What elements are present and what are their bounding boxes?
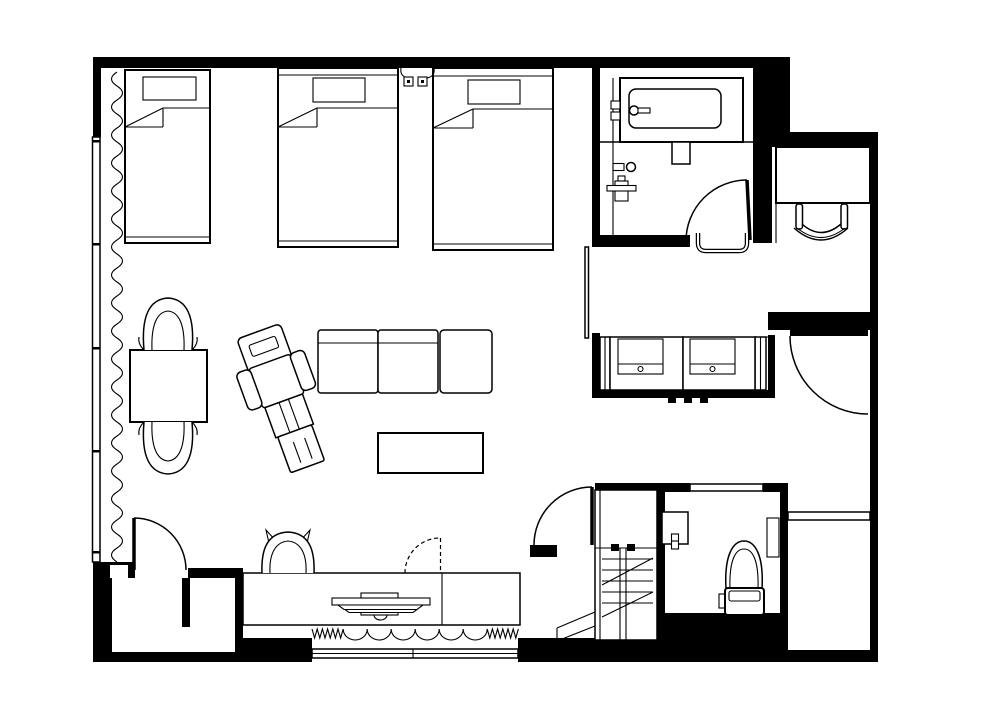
wall-niche-pier [182, 578, 190, 627]
glass-partition [690, 484, 763, 491]
window-mullion [93, 450, 101, 453]
corridor-edge [585, 247, 589, 338]
sofa-seat [318, 330, 378, 393]
wall-left-upper [93, 57, 101, 137]
door-leaf [790, 330, 868, 336]
bathroom-door [686, 180, 750, 241]
coffee-table [378, 433, 483, 473]
chair-back [143, 422, 192, 474]
reading-lights [401, 68, 434, 86]
floorplan [0, 0, 1000, 718]
wall-wardrobe-bottom [592, 390, 775, 398]
tv-speaker-bar [338, 605, 423, 610]
lamp-dot [421, 80, 424, 83]
dining-chair-bottom [139, 422, 198, 474]
curtain [112, 72, 123, 562]
pillow [468, 80, 520, 104]
pillow [313, 78, 365, 102]
sofa-ottoman [440, 330, 492, 393]
bathroom [600, 78, 753, 251]
chair-seat-arc [802, 224, 841, 233]
wall-bottom-seg2 [518, 638, 595, 662]
sofa [318, 330, 492, 393]
lamp-dot [407, 80, 410, 83]
towel-bar [698, 233, 747, 251]
faucet-knob [630, 106, 639, 115]
wall-wc-bottom-block [657, 613, 788, 662]
tap-knob [627, 163, 636, 172]
wall-corner-block [772, 57, 790, 147]
folding-door [405, 538, 441, 573]
drawer-unit [683, 337, 755, 390]
towel-bar-outer [698, 233, 747, 251]
wall-bottom-seg1 [243, 638, 312, 662]
desk-chair [794, 204, 848, 240]
deck-pillar [672, 142, 690, 164]
faucet-handle [611, 101, 620, 109]
washbasin [662, 512, 688, 549]
entry-door [790, 330, 868, 414]
floorplan-svg [0, 0, 1000, 718]
tv-screen-bar [332, 598, 430, 605]
desk [776, 147, 870, 203]
chair-arm [796, 204, 803, 229]
wall-tick [700, 398, 708, 403]
door-swing-arc-dashed [405, 538, 440, 573]
tv-base-bar [345, 610, 417, 613]
niche-notch [110, 565, 128, 578]
sofa-seat [378, 330, 438, 393]
door-swing-arc [790, 336, 868, 414]
wall-bathroom-left [592, 57, 600, 247]
stool [262, 530, 314, 573]
wall-bathroom-bottom [592, 235, 690, 247]
window-mullion [93, 140, 101, 143]
bed-1 [125, 70, 210, 243]
wall-niche-top-right [188, 568, 243, 578]
dining-set [130, 298, 207, 474]
window-mullion [93, 347, 101, 350]
mixer-bar [607, 186, 636, 192]
chair-arm [841, 204, 848, 229]
mixer-top [618, 176, 625, 181]
wall-taps [607, 163, 636, 202]
dining-chair-top [139, 298, 198, 350]
wall-tick [668, 398, 676, 403]
wall-wc-divider [657, 490, 665, 613]
door-swing-arc [686, 180, 747, 241]
wardrobe [600, 337, 768, 390]
faucet-spout [638, 108, 650, 113]
fold-out-flap [557, 612, 595, 641]
wall-right [870, 132, 878, 662]
wall-bottom-niche [93, 652, 243, 662]
drawer-unit [610, 337, 683, 390]
door-swing-arc [134, 518, 186, 570]
pillow [143, 77, 196, 100]
hinge-block [627, 544, 635, 551]
window-mullion [93, 243, 101, 246]
door-leaf [747, 180, 750, 240]
window-bottom [312, 649, 518, 658]
chair-seat-arc [794, 228, 848, 240]
wall-wardrobe-left [592, 333, 600, 398]
wall-bottom-right [788, 650, 878, 662]
door-swing-arc [534, 487, 592, 545]
wall-nook-top [790, 132, 878, 147]
chair-back [143, 298, 192, 350]
faucet-handle [611, 112, 620, 120]
wall-stub [530, 545, 557, 557]
bed-2 [278, 68, 398, 247]
wall-tick [684, 398, 692, 403]
tap-body [613, 164, 624, 171]
wall-shelf [767, 518, 779, 557]
wall-bottom-seg3 [595, 640, 657, 662]
towel-bar-inner [698, 233, 747, 251]
wall-top [93, 57, 790, 68]
dining-table [130, 350, 207, 422]
wc-door [534, 487, 592, 545]
wall-entry-top [768, 312, 878, 330]
hinge-block [611, 544, 619, 551]
wall-wardrobe-right [768, 335, 775, 395]
closet-shelf [788, 512, 870, 520]
bed-3 [433, 68, 553, 250]
wall-bathroom-right [753, 57, 772, 243]
window-mullion [93, 551, 101, 554]
toilet [719, 541, 764, 615]
valance [312, 629, 518, 640]
niche-door [134, 518, 186, 570]
desk-nook [776, 147, 870, 243]
shower-unit [557, 490, 657, 641]
wall-niche-right [235, 568, 243, 652]
